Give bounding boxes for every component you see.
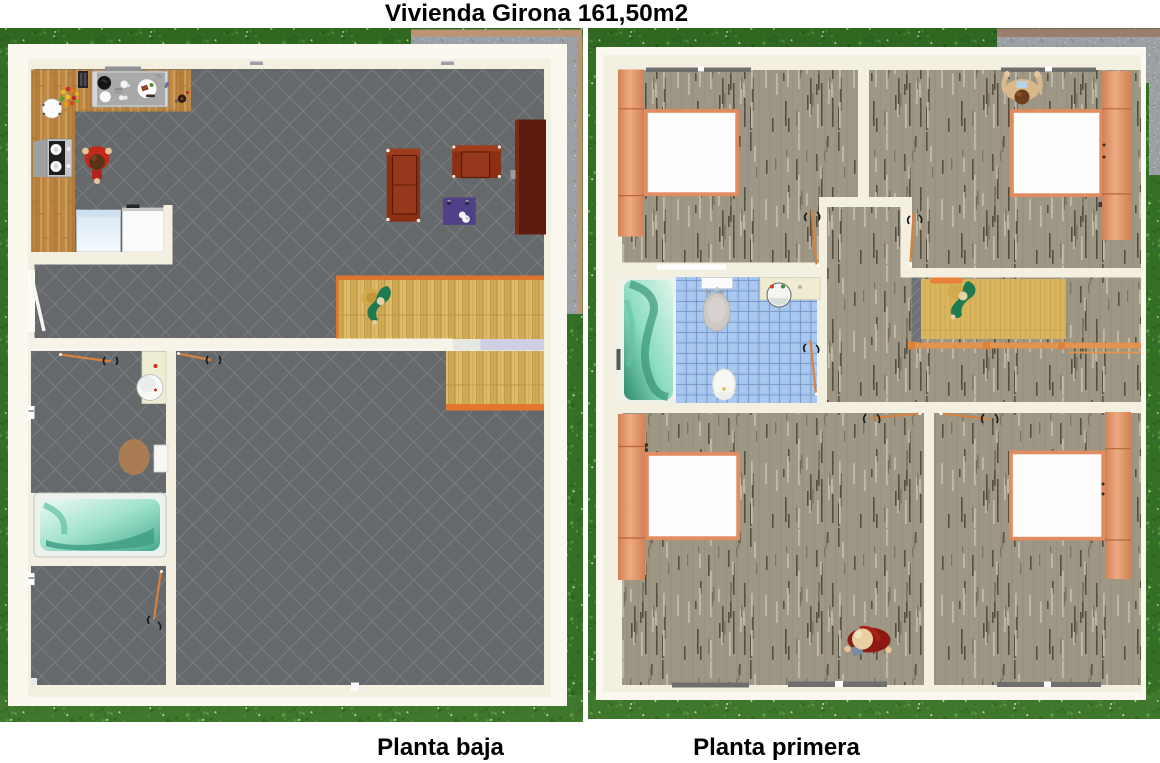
svg-text:Vivienda Girona 161,50m2: Vivienda Girona 161,50m2 [385, 0, 688, 27]
svg-text:Planta primera: Planta primera [693, 734, 860, 761]
svg-text:Planta baja: Planta baja [377, 734, 504, 761]
